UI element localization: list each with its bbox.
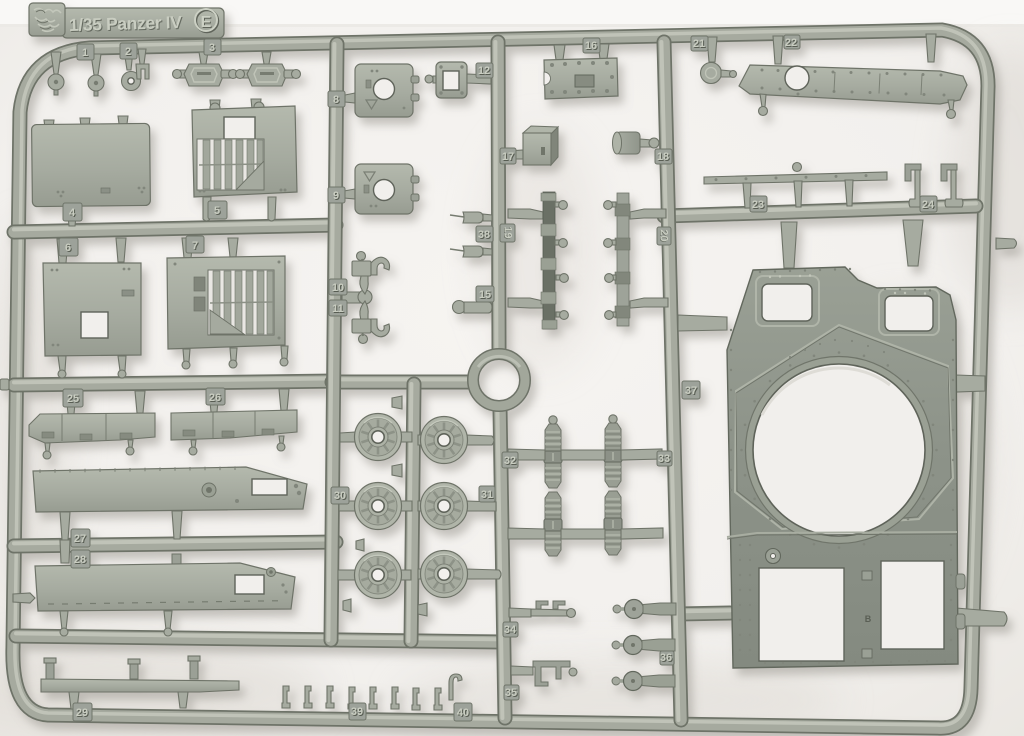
svg-text:11: 11	[332, 303, 344, 315]
svg-text:18: 18	[657, 151, 669, 163]
svg-text:10: 10	[332, 282, 344, 294]
svg-text:15: 15	[479, 289, 491, 301]
svg-text:39: 39	[351, 706, 363, 718]
svg-text:8: 8	[333, 94, 339, 106]
svg-text:34: 34	[504, 624, 517, 636]
svg-text:B: B	[865, 614, 872, 624]
svg-text:4: 4	[69, 207, 76, 219]
svg-text:7: 7	[192, 240, 198, 252]
svg-text:5: 5	[214, 205, 220, 217]
svg-text:20: 20	[658, 229, 670, 241]
svg-text:1: 1	[82, 47, 88, 59]
svg-text:21: 21	[693, 38, 705, 50]
svg-text:19: 19	[502, 226, 514, 238]
svg-text:25: 25	[67, 393, 79, 405]
svg-text:2: 2	[125, 46, 131, 58]
svg-text:9: 9	[333, 190, 339, 202]
svg-text:31: 31	[481, 489, 493, 501]
svg-text:22: 22	[785, 37, 797, 49]
svg-text:12: 12	[478, 65, 490, 77]
svg-text:26: 26	[209, 392, 221, 404]
svg-text:16: 16	[585, 40, 597, 52]
svg-text:24: 24	[922, 199, 935, 211]
svg-text:33: 33	[658, 453, 670, 465]
svg-text:30: 30	[334, 490, 346, 502]
svg-text:28: 28	[74, 554, 86, 566]
svg-text:38: 38	[478, 229, 490, 241]
svg-text:17: 17	[502, 151, 514, 163]
svg-text:1/35 Panzer IV: 1/35 Panzer IV	[69, 12, 183, 35]
svg-text:6: 6	[65, 242, 71, 254]
svg-text:40: 40	[457, 707, 469, 719]
svg-text:32: 32	[504, 455, 516, 467]
svg-text:3: 3	[209, 42, 215, 54]
svg-text:37: 37	[685, 385, 697, 397]
svg-text:35: 35	[505, 687, 517, 699]
svg-text:23: 23	[752, 199, 764, 211]
svg-text:36: 36	[660, 652, 672, 664]
svg-text:29: 29	[76, 707, 88, 719]
svg-text:27: 27	[74, 533, 86, 545]
svg-text:E: E	[201, 14, 212, 31]
